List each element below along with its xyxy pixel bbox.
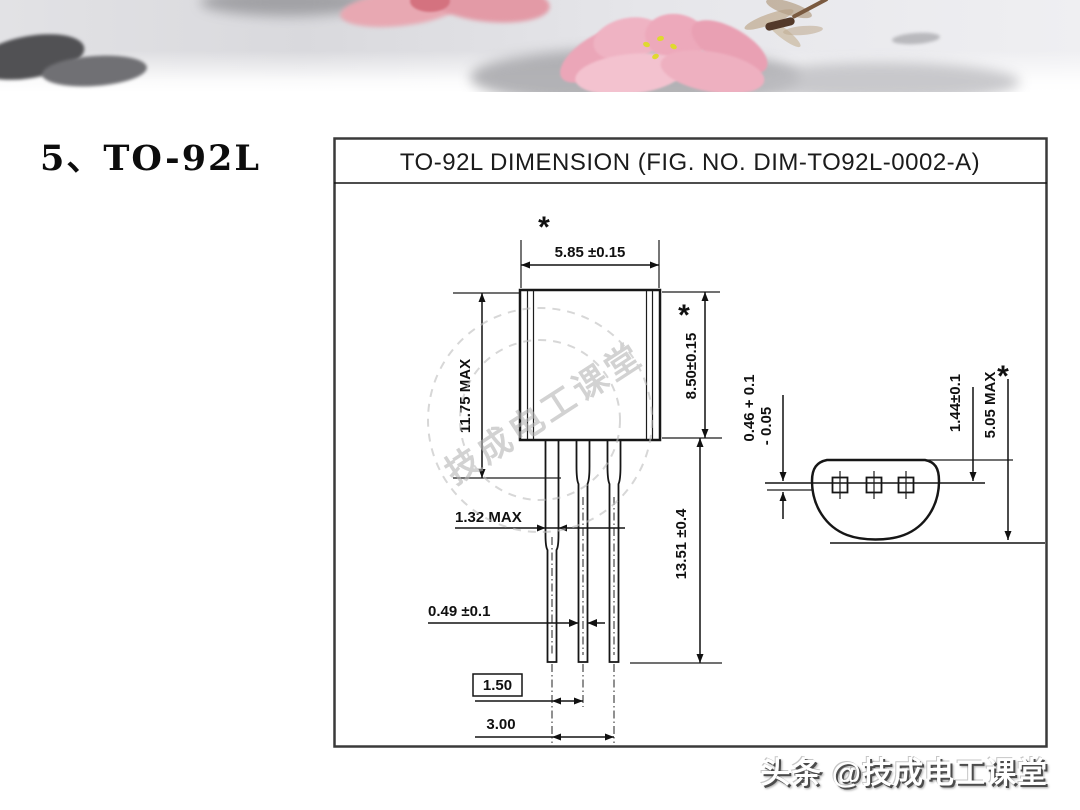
diagram-border bbox=[335, 139, 1047, 747]
footer-credit: 头条 @技成电工课堂 bbox=[760, 748, 1048, 792]
asterisk-mark: * bbox=[997, 360, 1009, 393]
dimension-diagram: TO-92L DIMENSION (FIG. NO. DIM-TO92L-000… bbox=[333, 137, 1048, 748]
dim-lead-pitch: 1.50 bbox=[483, 677, 512, 694]
dim-body-width: 5.85 ±0.15 bbox=[555, 244, 626, 261]
asterisk-mark: * bbox=[538, 211, 550, 244]
lead-left bbox=[546, 440, 559, 662]
floating-leaf bbox=[892, 31, 941, 45]
slide: 5、TO-92L TO-92L DIMENSION (FIG. NO. DIM-… bbox=[0, 0, 1080, 810]
dimension-drawing-svg: TO-92L DIMENSION (FIG. NO. DIM-TO92L-000… bbox=[333, 137, 1048, 748]
dim-body-width-group: 5.85 ±0.15 * bbox=[521, 211, 659, 288]
dim-lead-wide-group: 1.32 MAX bbox=[455, 509, 625, 532]
dim-flat-to-lead: 1.44±0.1 bbox=[947, 374, 964, 432]
dim-lead-span: 3.00 bbox=[486, 716, 515, 733]
bottom-view-outline bbox=[812, 460, 939, 540]
dragonfly-wing bbox=[783, 24, 824, 36]
slide-heading-text: 5、TO-92L bbox=[40, 138, 261, 179]
dim-lead-wide: 1.32 MAX bbox=[455, 509, 522, 526]
dim-lead-length-group: 13.51 ±0.4 bbox=[630, 438, 722, 663]
dim-standoff-value: 0.46 + 0.1 bbox=[741, 374, 758, 441]
diagram-title: TO-92L DIMENSION (FIG. NO. DIM-TO92L-000… bbox=[400, 149, 980, 176]
dim-lead-length: 13.51 ±0.4 bbox=[673, 508, 690, 579]
dim-body-height: 8.50±0.15 bbox=[683, 333, 700, 400]
dim-standoff-group: 0.46 + 0.1 - 0.05 bbox=[741, 374, 783, 519]
dim-flat-to-lead-group: 1.44±0.1 bbox=[947, 374, 973, 481]
dim-body-height-group: 8.50±0.15 * bbox=[662, 292, 722, 438]
slide-heading: 5、TO-92L bbox=[40, 130, 261, 181]
dim-lead-pitch-group: 1.50 bbox=[473, 674, 583, 705]
dim-overall-depth-group: 5.05 MAX * bbox=[982, 360, 1009, 540]
dim-standoff-tolerance: - 0.05 bbox=[758, 407, 775, 445]
bottom-view-package bbox=[765, 460, 1045, 543]
dim-lead-span-group: 3.00 bbox=[475, 716, 614, 741]
decorative-banner bbox=[0, 0, 1080, 92]
lotus-flower-small bbox=[340, 0, 580, 36]
dim-overall-height: 11.75 MAX bbox=[457, 359, 474, 433]
asterisk-mark: * bbox=[678, 299, 690, 332]
dragonfly-icon bbox=[735, 0, 840, 60]
dim-lead-narrow: 0.49 ±0.1 bbox=[428, 603, 490, 620]
